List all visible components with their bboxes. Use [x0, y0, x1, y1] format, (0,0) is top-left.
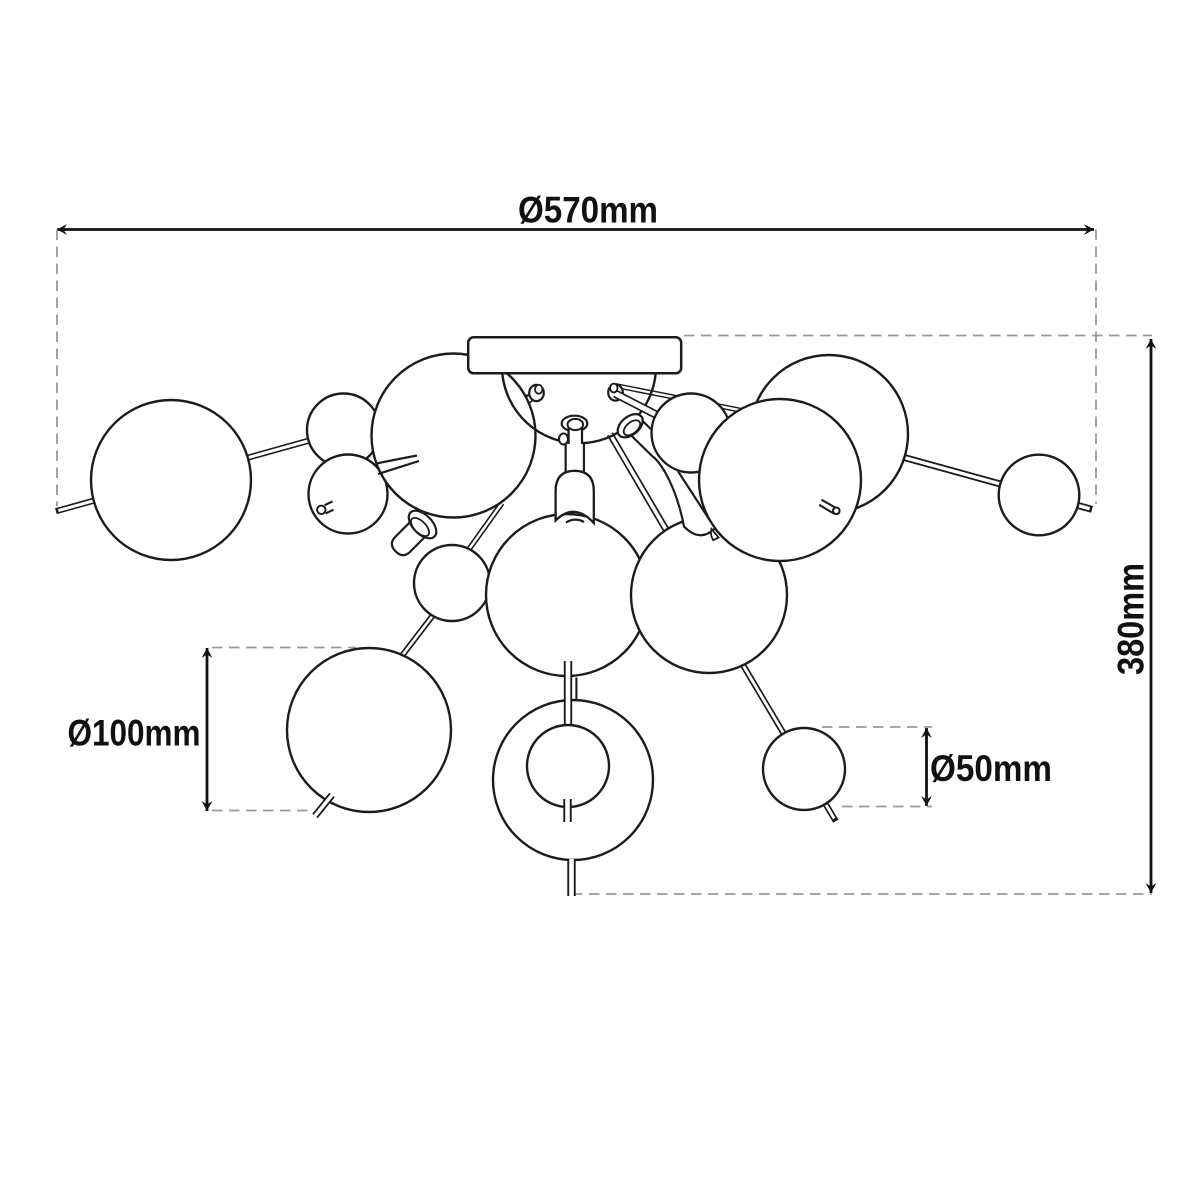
svg-text:380mm: 380mm [1111, 563, 1152, 675]
svg-text:Ø100mm: Ø100mm [68, 713, 201, 754]
svg-text:Ø570mm: Ø570mm [518, 190, 658, 231]
svg-text:Ø50mm: Ø50mm [930, 748, 1052, 789]
